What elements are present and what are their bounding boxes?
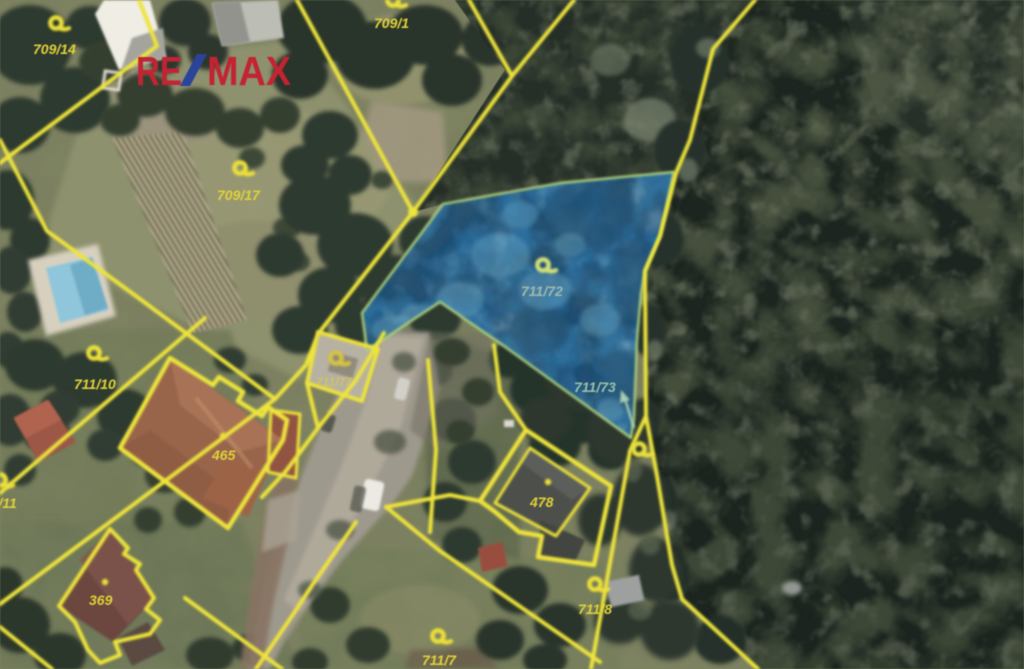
svg-text:MAX: MAX (207, 48, 291, 94)
svg-text:709/1: 709/1 (374, 15, 409, 31)
svg-text:711/8: 711/8 (578, 601, 612, 617)
svg-text:709/17: 709/17 (217, 187, 261, 203)
svg-text:711/7: 711/7 (422, 652, 457, 668)
svg-text:711/72: 711/72 (521, 283, 563, 299)
svg-text:711/10: 711/10 (74, 376, 116, 392)
svg-text:478: 478 (529, 494, 554, 510)
svg-text:711/73: 711/73 (574, 379, 616, 395)
svg-text:369: 369 (89, 592, 113, 608)
svg-text:711/77: 711/77 (316, 375, 353, 389)
svg-text:711/11: 711/11 (0, 495, 17, 511)
svg-text:RE: RE (136, 48, 182, 94)
svg-text:709/14: 709/14 (33, 41, 76, 57)
svg-text:465: 465 (211, 447, 236, 463)
